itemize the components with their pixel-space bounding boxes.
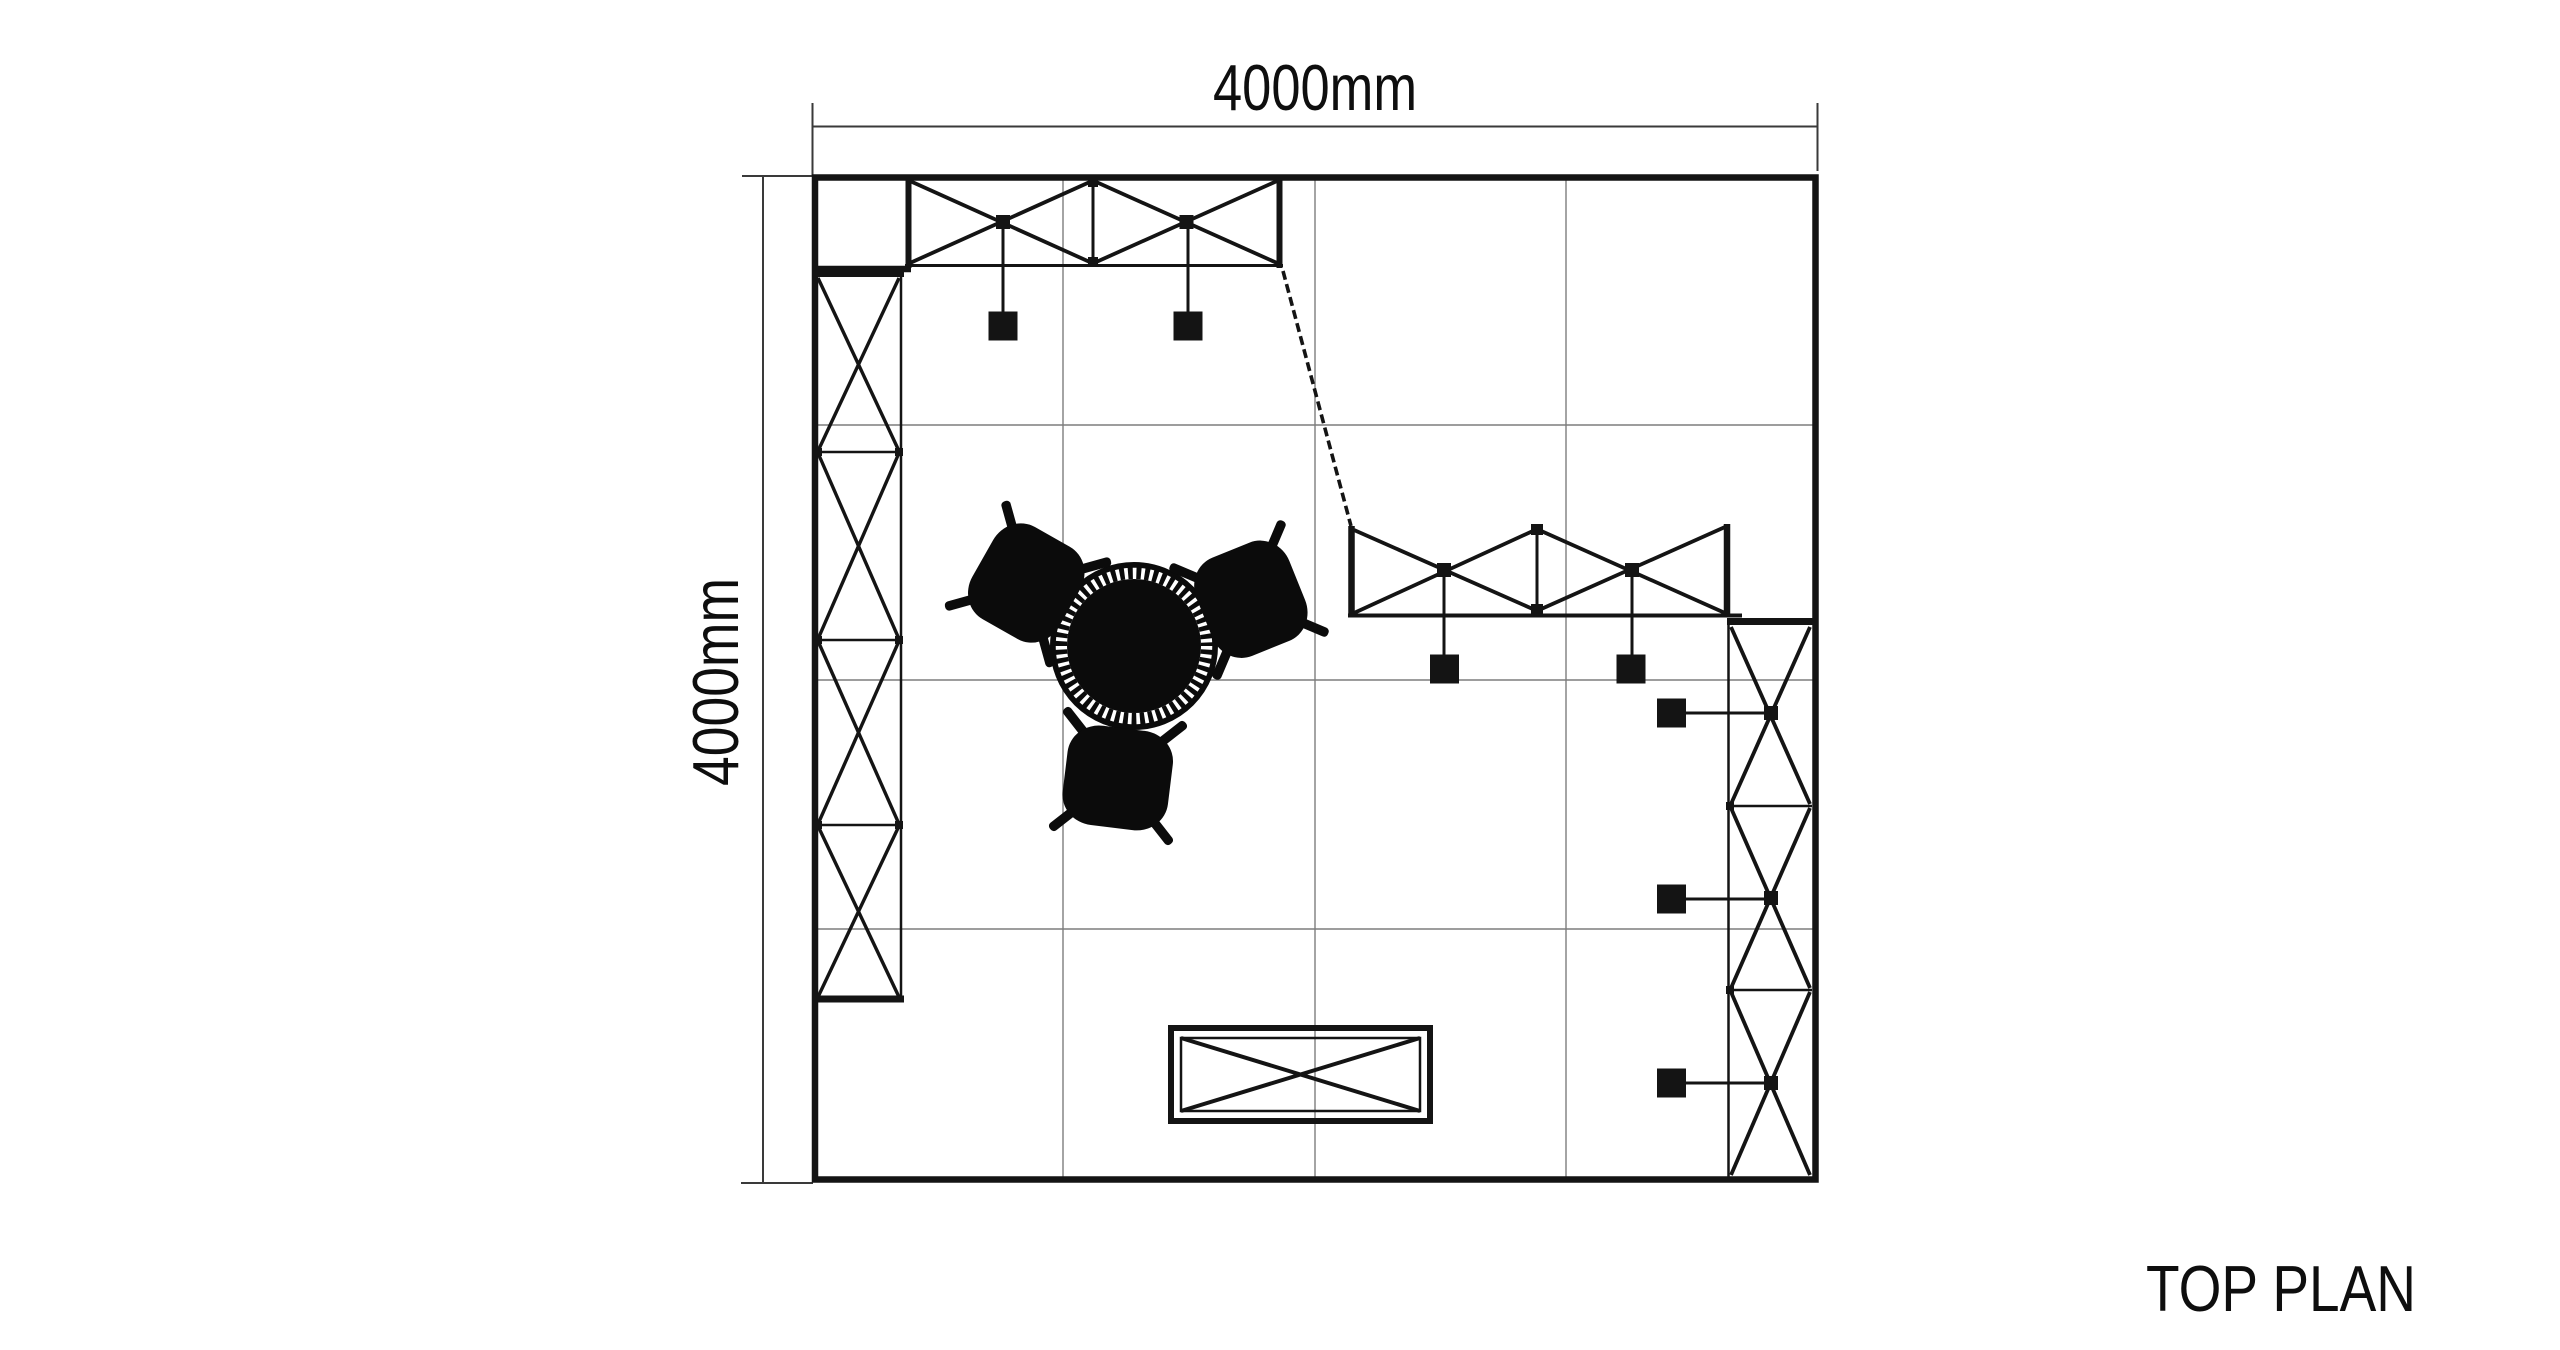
svg-text:4000mm: 4000mm <box>1213 52 1417 124</box>
svg-text:TOP PLAN: TOP PLAN <box>2146 1253 2416 1325</box>
svg-text:4000mm: 4000mm <box>680 578 752 786</box>
